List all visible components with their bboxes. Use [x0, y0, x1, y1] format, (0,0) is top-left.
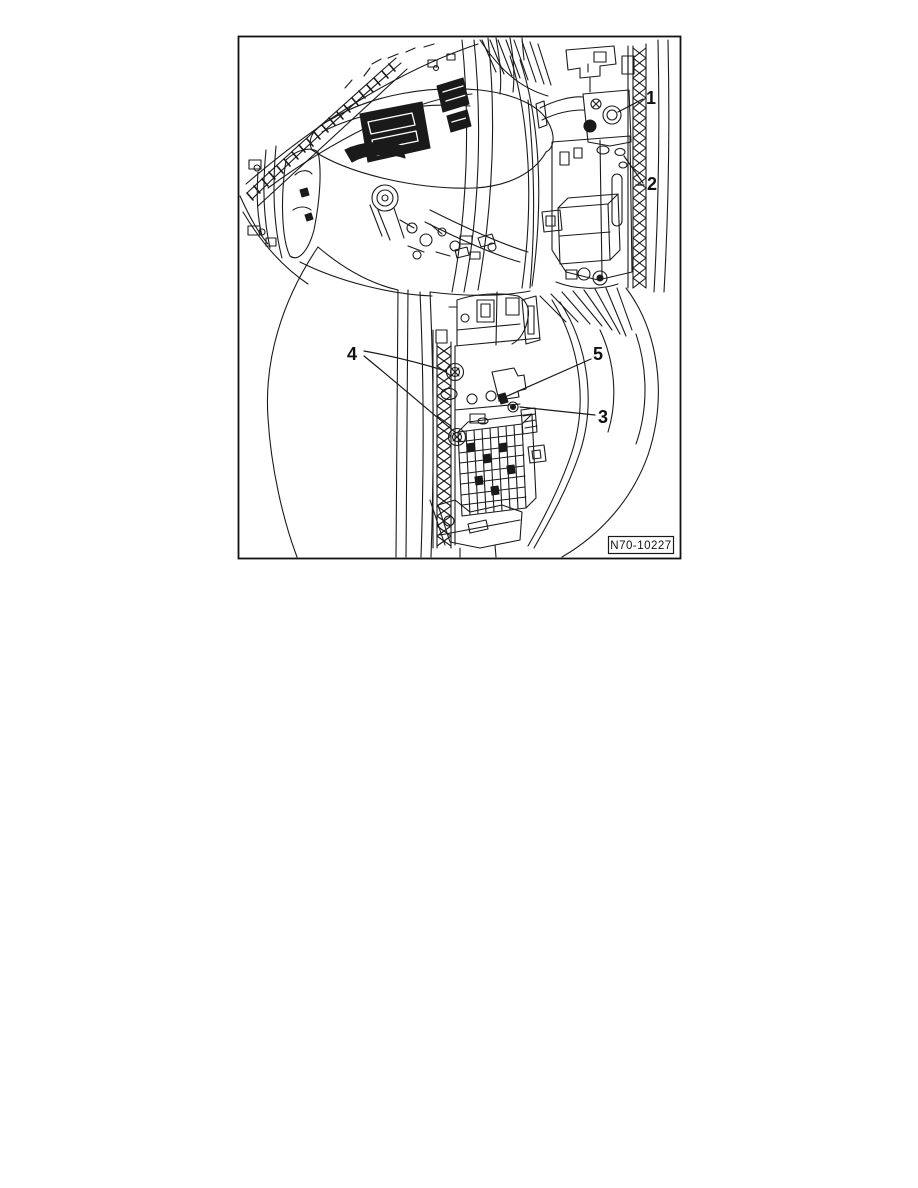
- manual-page: 1 2 3 4 5 N70-10227: [0, 0, 918, 1188]
- callout-label-4: 4: [347, 344, 357, 364]
- figure-code-box: N70-10227: [609, 537, 674, 554]
- callout-label-2: 2: [647, 174, 657, 194]
- callout-label-3: 3: [598, 407, 608, 427]
- callout-label-5: 5: [593, 344, 603, 364]
- figure-code-label: N70-10227: [610, 540, 671, 552]
- figure-illustration: 1 2 3 4 5 N70-10227: [0, 0, 918, 1188]
- callout-label-1: 1: [646, 88, 656, 108]
